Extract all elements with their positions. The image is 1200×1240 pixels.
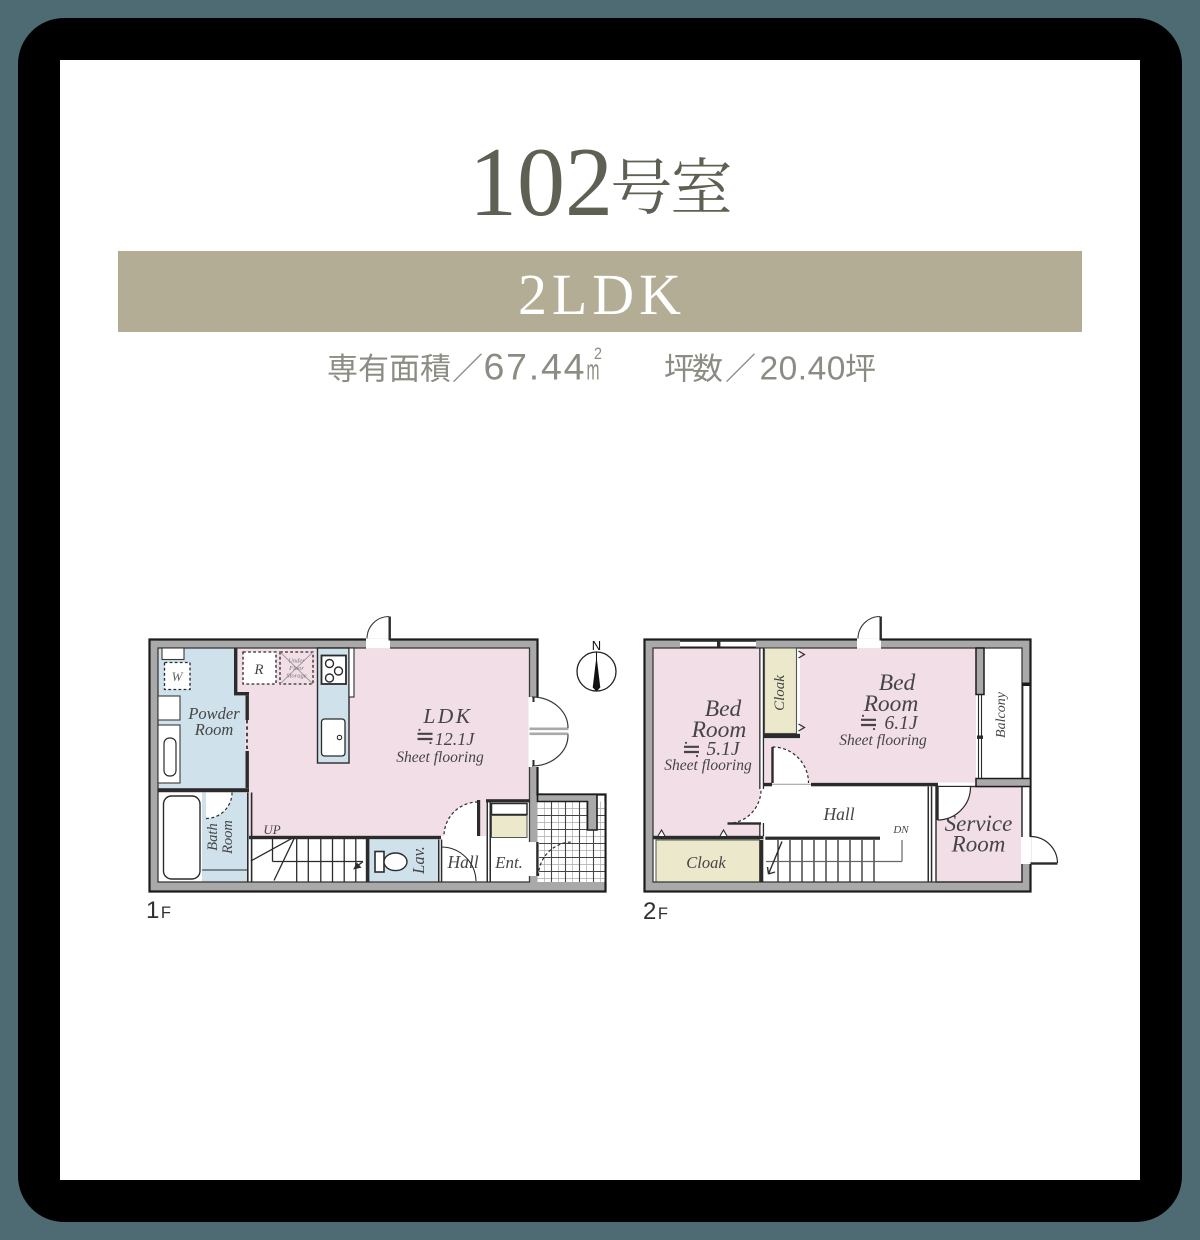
- svg-text:Storage: Storage: [286, 673, 306, 680]
- svg-text:W: W: [172, 669, 184, 684]
- svg-text:2LDK: 2LDK: [518, 262, 681, 327]
- svg-text:R: R: [253, 662, 263, 678]
- svg-text:Lav.: Lav.: [409, 846, 428, 875]
- svg-text:20.40: 20.40: [760, 351, 846, 388]
- svg-text:2F: 2F: [643, 898, 668, 925]
- svg-text:Room: Room: [194, 720, 234, 739]
- svg-text:6.1J: 6.1J: [884, 713, 918, 734]
- svg-text:Sheet flooring: Sheet flooring: [396, 749, 484, 766]
- svg-text:BathRoom: BathRoom: [205, 820, 236, 855]
- svg-text:DN: DN: [892, 824, 909, 836]
- svg-text:LDK: LDK: [422, 704, 472, 728]
- svg-text:Cloak: Cloak: [772, 675, 788, 711]
- svg-text:Floor: Floor: [288, 665, 304, 672]
- svg-text:N: N: [592, 638, 601, 653]
- svg-text:2: 2: [594, 344, 602, 363]
- svg-text:Room: Room: [951, 832, 1006, 857]
- svg-text:67.44: 67.44: [484, 346, 587, 388]
- svg-text:Ent.: Ent.: [494, 853, 523, 872]
- svg-text:UP: UP: [263, 822, 280, 837]
- svg-text:Cloak: Cloak: [686, 853, 726, 872]
- svg-text:Under: Under: [288, 658, 305, 665]
- svg-text:Sheet flooring: Sheet flooring: [664, 757, 752, 774]
- svg-text:Balcony: Balcony: [994, 691, 1009, 738]
- svg-text:Sheet flooring: Sheet flooring: [839, 732, 927, 749]
- svg-text:1F: 1F: [146, 897, 171, 924]
- svg-text:102: 102: [469, 130, 613, 230]
- svg-text:12.1J: 12.1J: [435, 729, 476, 749]
- svg-text:Hall: Hall: [822, 804, 854, 824]
